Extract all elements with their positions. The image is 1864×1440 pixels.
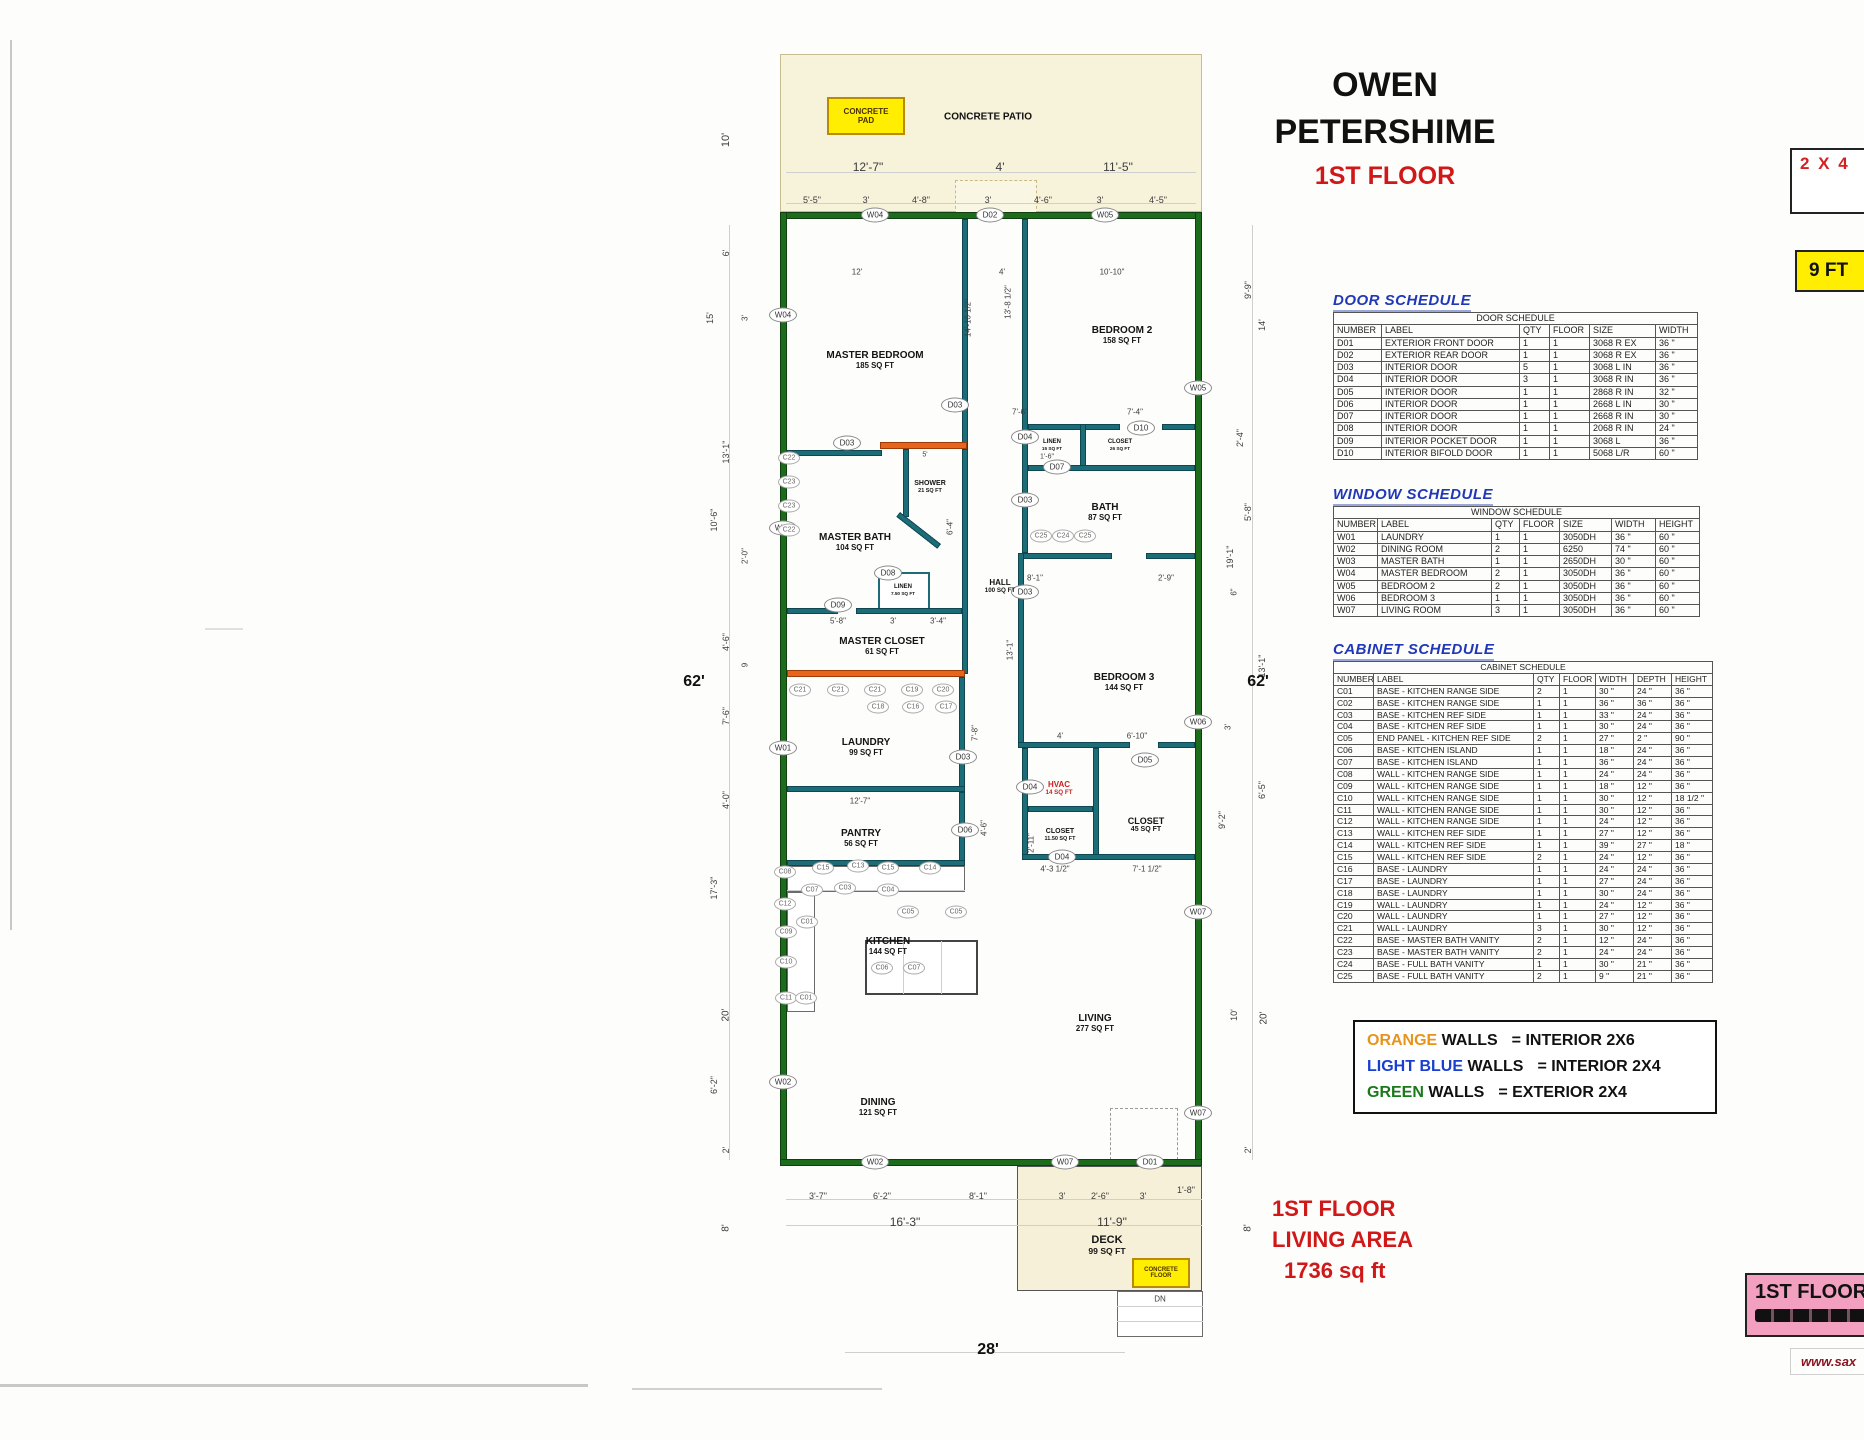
table-row: D09INTERIOR POCKET DOOR113068 L36 "	[1334, 435, 1698, 447]
concrete-label-box: CONCRETE FLOOR	[1132, 1258, 1190, 1288]
window-marker: W04	[861, 208, 889, 223]
door-marker: D07	[1043, 460, 1071, 475]
table-row: C20WALL - LAUNDRY1127 "12 "36 "	[1334, 911, 1713, 923]
room-label: MASTER CLOSET61 SQ FT	[839, 636, 925, 656]
dimension-label: 4'-6"	[980, 820, 989, 836]
table-row: C13WALL - KITCHEN REF SIDE1127 "12 "36 "	[1334, 828, 1713, 840]
interior-wall-2x4	[787, 450, 882, 456]
room-label: LAUNDRY99 SQ FT	[842, 737, 891, 757]
door-marker: D03	[833, 436, 861, 451]
cabinet-marker: C21	[789, 684, 811, 697]
dimension-label: 7'-8"	[971, 725, 980, 741]
cabinet-marker: C25	[1074, 530, 1096, 543]
cabinet-marker: C06	[871, 962, 893, 975]
table-row: C01BASE - KITCHEN RANGE SIDE2130 "24 "36…	[1334, 685, 1713, 697]
dimension-label: 8'-1"	[1027, 574, 1043, 583]
interior-wall-2x4	[1146, 553, 1195, 559]
dimension-label: 10'-10"	[1100, 268, 1125, 277]
table-row: D07INTERIOR DOOR112668 R IN30 "	[1334, 411, 1698, 423]
dimension-label: 12'-7"	[850, 797, 870, 806]
table-row: C23BASE - MASTER BATH VANITY2124 "24 "36…	[1334, 947, 1713, 959]
dimension-label: 12'	[852, 268, 862, 277]
cabinet-marker: C24	[1052, 530, 1074, 543]
dimension-label: 20'	[721, 1008, 732, 1021]
table-row: C25BASE - FULL BATH VANITY219 "21 "36 "	[1334, 970, 1713, 982]
dimension-label: 3'	[1140, 1191, 1147, 1201]
table-row: D01EXTERIOR FRONT DOOR113068 R EX36 "	[1334, 337, 1698, 349]
sheet-title: 1ST FLOOR	[1235, 162, 1535, 191]
door-marker: D04	[1048, 850, 1076, 865]
table-row: D10INTERIOR BIFOLD DOOR115068 L/R60 "	[1334, 447, 1698, 459]
interior-wall-2x4	[1158, 742, 1195, 748]
ceiling-height-note: 9 FT	[1795, 250, 1864, 292]
interior-wall-2x4	[856, 608, 962, 614]
table-row: C22BASE - MASTER BATH VANITY2112 "24 "36…	[1334, 935, 1713, 947]
window-marker: W07	[1184, 1106, 1212, 1121]
room-label: CLOSET11.50 SQ FT	[1045, 828, 1076, 842]
dimension-label: 8'	[721, 1224, 732, 1231]
cabinet-marker: C23	[778, 476, 800, 489]
window-marker: W07	[1184, 905, 1212, 920]
dimension-label: 3'	[1059, 1191, 1066, 1201]
table-row: C06BASE - KITCHEN ISLAND1118 "24 "36 "	[1334, 745, 1713, 757]
room-label: LINEN15 SQ FT	[1042, 439, 1062, 451]
table-row: D02EXTERIOR REAR DOOR113068 R EX36 "	[1334, 349, 1698, 361]
room-label: HVAC14 SQ FT	[1045, 780, 1072, 796]
door-marker: D04	[1016, 780, 1044, 795]
cabinet-marker: C09	[775, 926, 797, 939]
interior-wall-2x4	[1028, 424, 1120, 430]
cabinet-marker: C20	[932, 684, 954, 697]
window-marker: W04	[769, 308, 797, 323]
lumber-note-line1: 2 X 4	[1800, 154, 1864, 174]
interior-wall-2x4	[896, 512, 941, 549]
legend-row: LIGHT BLUE WALLS= INTERIOR 2X4	[1367, 1054, 1703, 1080]
table-row: C19WALL - LAUNDRY1124 "12 "36 "	[1334, 899, 1713, 911]
cabinet-schedule-table: CABINET SCHEDULENUMBERLABELQTYFLOORWIDTH…	[1333, 661, 1713, 983]
dimension-label: 8'	[1243, 1224, 1254, 1231]
interior-wall-2x4	[1018, 553, 1024, 748]
interior-wall-2x6	[787, 670, 965, 677]
dimension-label: 4'-6"	[1034, 195, 1052, 205]
dimension-label: 13'-1"	[1006, 640, 1015, 660]
door-marker: D03	[1011, 493, 1039, 508]
dimension-label: 14'-10 1/2"	[964, 299, 973, 337]
interior-wall-2x4	[903, 449, 909, 517]
room-label: CLOSET26 SQ FT	[1108, 439, 1132, 451]
dimension-label: 11'-9"	[1097, 1215, 1127, 1229]
room-label: SHOWER21 SQ FT	[914, 480, 946, 494]
table-row: C03BASE - KITCHEN REF SIDE1133 "24 "36 "	[1334, 709, 1713, 721]
dimension-label: 3'-4"	[930, 617, 946, 626]
table-row: D04INTERIOR DOOR313068 R IN36 "	[1334, 374, 1698, 386]
table-row: D08INTERIOR DOOR112068 R IN24 "	[1334, 423, 1698, 435]
floor-plan-sheet: CONCRETE PADCONCRETE FLOORW04D02W05W04W0…	[0, 0, 1864, 1440]
room-label: DINING121 SQ FT	[859, 1097, 897, 1117]
room-label: BEDROOM 3144 SQ FT	[1094, 672, 1155, 692]
exterior-wall	[780, 212, 787, 1166]
dimension-line	[786, 172, 1196, 173]
table-row: C15WALL - KITCHEN REF SIDE2124 "12 "36 "	[1334, 852, 1713, 864]
door-marker: D08	[874, 566, 902, 581]
cabinet-marker: C22	[778, 452, 800, 465]
dimension-label: 16'-3"	[890, 1215, 921, 1229]
door-marker: D01	[1136, 1155, 1164, 1170]
table-header-row: NUMBERLABELQTYFLOORSIZEWIDTHHEIGHT	[1334, 519, 1700, 531]
room-label: KITCHEN144 SQ FT	[866, 936, 910, 956]
table-row: C10WALL - KITCHEN RANGE SIDE1130 "12 "18…	[1334, 792, 1713, 804]
table-row: C18BASE - LAUNDRY1130 "24 "36 "	[1334, 887, 1713, 899]
dimension-label: 3'	[1224, 724, 1233, 730]
dimension-label: 4'	[1057, 732, 1063, 741]
dimension-label: 3'-7"	[809, 1191, 827, 1201]
dimension-label: 6'	[721, 250, 731, 257]
dimension-label: 4'-8"	[912, 195, 930, 205]
cabinet-marker: C15	[877, 862, 899, 875]
dashgray-area	[1110, 1108, 1178, 1160]
cabinet-schedule-heading: CABINET SCHEDULE	[1333, 641, 1494, 661]
lumber-note: 2 X 4 W	[1790, 148, 1864, 214]
door-marker: D02	[976, 208, 1004, 223]
window-marker: W07	[1051, 1155, 1079, 1170]
cabinet-marker: C14	[919, 862, 941, 875]
cabinet-marker: C23	[778, 500, 800, 513]
interior-wall-2x4	[1018, 742, 1130, 748]
room-label: PANTRY56 SQ FT	[841, 828, 881, 848]
concrete-label-box: CONCRETE PAD	[827, 97, 905, 135]
room-label: MASTER BATH104 SQ FT	[819, 532, 891, 552]
living-area-note: 1ST FLOOR LIVING AREA 1736 sq ft	[1272, 1193, 1413, 1286]
cabinet-marker: C01	[795, 992, 817, 1005]
dimension-label: 62'	[1247, 673, 1269, 691]
dimension-label: 7'-6"	[1012, 408, 1028, 417]
dimension-label: 5'	[922, 452, 927, 459]
dimension-label: 19'-1"	[1225, 546, 1235, 569]
table-row: D03INTERIOR DOOR513068 L IN36 "	[1334, 362, 1698, 374]
table-row: C08WALL - KITCHEN RANGE SIDE1124 "24 "36…	[1334, 768, 1713, 780]
room-label: LIVING277 SQ FT	[1076, 1013, 1114, 1033]
dimension-label: 9'-9"	[1243, 281, 1253, 299]
dimension-label: 7'-6"	[721, 707, 731, 725]
dimension-label: 62'	[683, 673, 705, 691]
living-area-line1: 1ST FLOOR	[1272, 1193, 1413, 1224]
title-block: OWEN PETERSHIME 1ST FLOOR	[1235, 66, 1535, 191]
floor-tag-label: 1ST FLOOR	[1755, 1281, 1864, 1304]
dimension-label: CONCRETE PATIO	[944, 112, 1032, 123]
dimension-line	[941, 941, 942, 994]
interior-wall-2x4	[1080, 424, 1086, 471]
door-marker: D03	[941, 398, 969, 413]
table-row: C07BASE - KITCHEN ISLAND1136 "24 "36 "	[1334, 757, 1713, 769]
cabinet-marker: C17	[935, 701, 957, 714]
lumber-note-line2: W	[1800, 178, 1864, 198]
table-title-row: CABINET SCHEDULE	[1334, 662, 1713, 674]
interior-wall-2x4	[959, 677, 965, 792]
cabinet-marker: C21	[827, 684, 849, 697]
dimension-label: 9	[741, 663, 750, 667]
dimension-line	[1117, 1321, 1203, 1322]
table-row: W02DINING ROOM21625074 "60 "	[1334, 543, 1700, 555]
dimension-label: 3'	[1097, 195, 1104, 205]
table-row: D05INTERIOR DOOR112868 R IN32 "	[1334, 386, 1698, 398]
door-marker: D04	[1011, 430, 1039, 445]
dimension-label: 4'	[996, 160, 1005, 174]
dimension-label: 2'-6"	[1091, 1191, 1109, 1201]
floor-tag: 1ST FLOOR	[1745, 1273, 1864, 1337]
exterior-wall	[1195, 212, 1202, 1166]
table-row: D06INTERIOR DOOR112668 L IN30 "	[1334, 398, 1698, 410]
cabinet-marker: C11	[775, 992, 797, 1005]
dimension-label: 20'	[1259, 1011, 1270, 1024]
dimension-label: 7'-1 1/2"	[1132, 865, 1161, 874]
dimension-label: 6'-2"	[709, 1076, 719, 1094]
door-marker: D10	[1127, 421, 1155, 436]
interior-wall-2x4	[1093, 748, 1099, 860]
interior-wall-2x4	[787, 786, 965, 792]
dimension-label: 8'-1"	[969, 1191, 987, 1201]
redacted-text	[1755, 1309, 1864, 1322]
door-marker: D05	[1131, 753, 1159, 768]
dimension-line	[1252, 225, 1253, 1160]
dimension-label: 28'	[977, 1341, 999, 1359]
table-row: C24BASE - FULL BATH VANITY1130 "21 "36 "	[1334, 958, 1713, 970]
room-label: BEDROOM 2158 SQ FT	[1092, 325, 1153, 345]
dimension-label: 5'-5"	[803, 195, 821, 205]
cabinet-marker: C03	[834, 882, 856, 895]
legend-row: GREEN WALLS= EXTERIOR 2X4	[1367, 1080, 1703, 1106]
room-label: MASTER BEDROOM185 SQ FT	[826, 350, 923, 370]
table-row: C14WALL - KITCHEN REF SIDE1139 "27 "18 "	[1334, 840, 1713, 852]
website-url: www.sax	[1790, 1348, 1864, 1375]
dimension-label: 3'	[863, 195, 870, 205]
dimension-label: 15'	[705, 312, 715, 324]
cabinet-marker: C10	[775, 956, 797, 969]
interior-wall-2x4	[1028, 806, 1093, 812]
dimension-label: 7'-4"	[1127, 408, 1143, 417]
dimension-label: 17'-3"	[709, 877, 719, 900]
dimension-line	[1117, 1306, 1203, 1307]
dimension-label: 4'-3 1/2"	[1040, 865, 1069, 874]
door-schedule-heading: DOOR SCHEDULE	[1333, 292, 1471, 312]
door-marker: D06	[951, 823, 979, 838]
cabinet-marker: C18	[867, 701, 889, 714]
dimension-label: 6'-4"	[946, 519, 955, 535]
dimension-label: 1'-8"	[1177, 1185, 1195, 1195]
table-row: C04BASE - KITCHEN REF SIDE1130 "24 "36 "	[1334, 721, 1713, 733]
dimension-label: 4'-5"	[1149, 195, 1167, 205]
dimension-label: 4'-6"	[721, 633, 731, 651]
dimension-label: DN	[1154, 1295, 1166, 1304]
cabinet-marker: C07	[801, 884, 823, 897]
dimension-line	[786, 1225, 1202, 1226]
cabinet-marker: C13	[847, 860, 869, 873]
room-label: HALL100 SQ FT	[985, 578, 1016, 594]
dimension-label: 5'-8"	[830, 617, 846, 626]
cabinet-marker: C05	[897, 906, 919, 919]
dimension-label: 9'-2"	[1217, 811, 1227, 829]
room-label: BATH87 SQ FT	[1088, 502, 1122, 522]
dimension-label: 13'-8 1/2"	[1004, 285, 1013, 319]
table-row: W05BEDROOM 2213050DH36 "60 "	[1334, 580, 1700, 592]
window-marker: W05	[1091, 208, 1119, 223]
table-header-row: NUMBERLABELQTYFLOORWIDTHDEPTHHEIGHT	[1334, 673, 1713, 685]
door-marker: D09	[824, 598, 852, 613]
dimension-label: 2'-4"	[1235, 429, 1245, 447]
table-row: C12WALL - KITCHEN RANGE SIDE1124 "12 "36…	[1334, 816, 1713, 828]
cabinet-marker: C22	[778, 524, 800, 537]
dimension-label: 6'-2"	[873, 1191, 891, 1201]
table-row: C09WALL - KITCHEN RANGE SIDE1118 "12 "36…	[1334, 780, 1713, 792]
window-marker: W05	[1184, 381, 1212, 396]
living-area-line2: LIVING AREA	[1272, 1224, 1413, 1255]
table-title-row: WINDOW SCHEDULE	[1334, 507, 1700, 519]
dimension-label: 10'	[720, 133, 732, 147]
table-row: W03MASTER BATH112650DH30 "60 "	[1334, 556, 1700, 568]
dimension-label: 6'-10"	[1127, 732, 1147, 741]
window-marker: W01	[769, 741, 797, 756]
cabinet-marker: C12	[774, 898, 796, 911]
door-marker: D03	[949, 750, 977, 765]
dimension-label: 1'-6"	[1040, 454, 1054, 461]
dimension-label: 2'-9"	[1158, 574, 1174, 583]
dimension-label: 6'-5"	[1257, 781, 1267, 799]
cabinet-marker: C07	[903, 962, 925, 975]
dimension-label: 3'	[741, 315, 750, 321]
window-marker: W02	[861, 1155, 889, 1170]
table-header-row: NUMBERLABELQTYFLOORSIZEWIDTH	[1334, 325, 1698, 337]
dimension-label: 2'	[721, 1147, 731, 1154]
dimension-label: 13'-1"	[721, 441, 731, 464]
dimension-label: 3'	[985, 195, 992, 205]
dimension-label: 10'	[1229, 1009, 1239, 1021]
cabinet-marker: C15	[812, 862, 834, 875]
window-marker: W02	[769, 1075, 797, 1090]
cabinet-marker: C19	[901, 684, 923, 697]
room-label: CLOSET45 SQ FT	[1128, 816, 1165, 834]
client-name-line2: PETERSHIME	[1235, 113, 1535, 152]
table-row: C17BASE - LAUNDRY1127 "24 "36 "	[1334, 875, 1713, 887]
dimension-label: 5'-8"	[1243, 503, 1253, 521]
dimension-label: 6"	[1230, 588, 1239, 595]
table-row: W06BEDROOM 3113050DH36 "60 "	[1334, 592, 1700, 604]
legend-row: ORANGE WALLS= INTERIOR 2X6	[1367, 1028, 1703, 1054]
table-row: C05END PANEL - KITCHEN REF SIDE2127 "2 "…	[1334, 733, 1713, 745]
door-schedule-table: DOOR SCHEDULENUMBERLABELQTYFLOORSIZEWIDT…	[1333, 312, 1698, 460]
cabinet-marker: C25	[1030, 530, 1052, 543]
interior-wall-2x6	[880, 442, 967, 449]
interior-wall-2x4	[962, 449, 968, 674]
interior-wall-2x4	[1022, 553, 1112, 559]
cabinet-marker: C16	[902, 701, 924, 714]
dimension-label: 2'-0"	[741, 548, 750, 564]
dimension-label: 11'-5"	[1103, 160, 1133, 174]
table-row: W01LAUNDRY113050DH36 "60 "	[1334, 531, 1700, 543]
interior-wall-2x4	[1162, 424, 1195, 430]
window-marker: W06	[1184, 715, 1212, 730]
room-label: LINEN7.50 SQ FT	[891, 584, 915, 596]
window-schedule-heading: WINDOW SCHEDULE	[1333, 486, 1493, 506]
dimension-label: 2'	[1243, 1147, 1253, 1154]
table-row: C21WALL - LAUNDRY3130 "12 "36 "	[1334, 923, 1713, 935]
living-area-value: 1736 sq ft	[1284, 1255, 1413, 1286]
table-row: W07LIVING ROOM313050DH36 "60 "	[1334, 605, 1700, 617]
table-row: C16BASE - LAUNDRY1124 "24 "36 "	[1334, 863, 1713, 875]
dimension-label: 14'	[1257, 319, 1267, 331]
dimension-label: 4'	[999, 268, 1005, 277]
table-row: C02BASE - KITCHEN RANGE SIDE1136 "36 "36…	[1334, 697, 1713, 709]
dimension-label: 2'-11"	[1027, 833, 1036, 853]
dimension-label: 4'-0"	[721, 791, 731, 809]
cabinet-marker: C04	[877, 884, 899, 897]
dimension-label: 10'-6"	[709, 509, 719, 532]
window-schedule-table: WINDOW SCHEDULENUMBERLABELQTYFLOORSIZEWI…	[1333, 506, 1700, 617]
dimension-label: 3'	[890, 617, 896, 626]
cabinet-marker: C05	[945, 906, 967, 919]
cabinet-marker: C01	[796, 916, 818, 929]
dimension-label: 12'-7"	[853, 160, 884, 174]
client-name-line1: OWEN	[1235, 66, 1535, 105]
table-title-row: DOOR SCHEDULE	[1334, 313, 1698, 325]
walls-legend: ORANGE WALLS= INTERIOR 2X6LIGHT BLUE WAL…	[1353, 1020, 1717, 1114]
table-row: C11WALL - KITCHEN RANGE SIDE1130 "12 "36…	[1334, 804, 1713, 816]
table-row: W04MASTER BEDROOM213050DH36 "60 "	[1334, 568, 1700, 580]
room-label: DECK99 SQ FT	[1088, 1234, 1125, 1257]
cabinet-marker: C08	[774, 866, 796, 879]
cabinet-marker: C21	[864, 684, 886, 697]
